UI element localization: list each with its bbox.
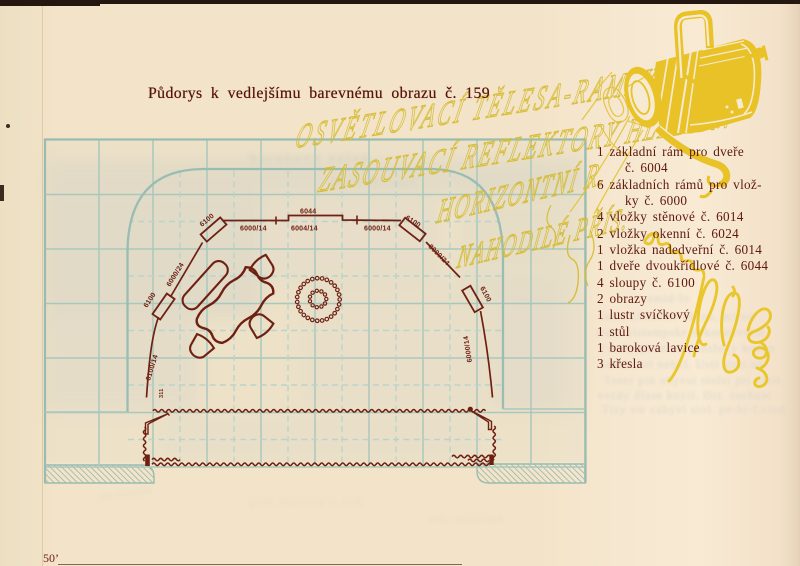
svg-text:6000/14: 6000/14: [240, 226, 267, 233]
svg-text:odo klabina: odo klabina: [430, 513, 504, 525]
svg-text:pini klasesa v sed: pini klasesa v sed: [250, 496, 363, 508]
svg-text:6004/14: 6004/14: [291, 226, 318, 233]
svg-text:6044: 6044: [300, 209, 316, 216]
svg-text:vecdy dlase knyil. Dis. suchow: vecdy dlase knyil. Dis. suchow: [598, 390, 771, 402]
svg-text:Tizy ow cabyvi stol. pe-hi-Lvi: Tizy ow cabyvi stol. pe-hi-Lvind: [602, 404, 785, 416]
svg-text:tre klasna: tre klasna: [99, 484, 153, 503]
svg-text:311: 311: [159, 389, 165, 398]
svg-text:6000/14: 6000/14: [364, 226, 391, 233]
